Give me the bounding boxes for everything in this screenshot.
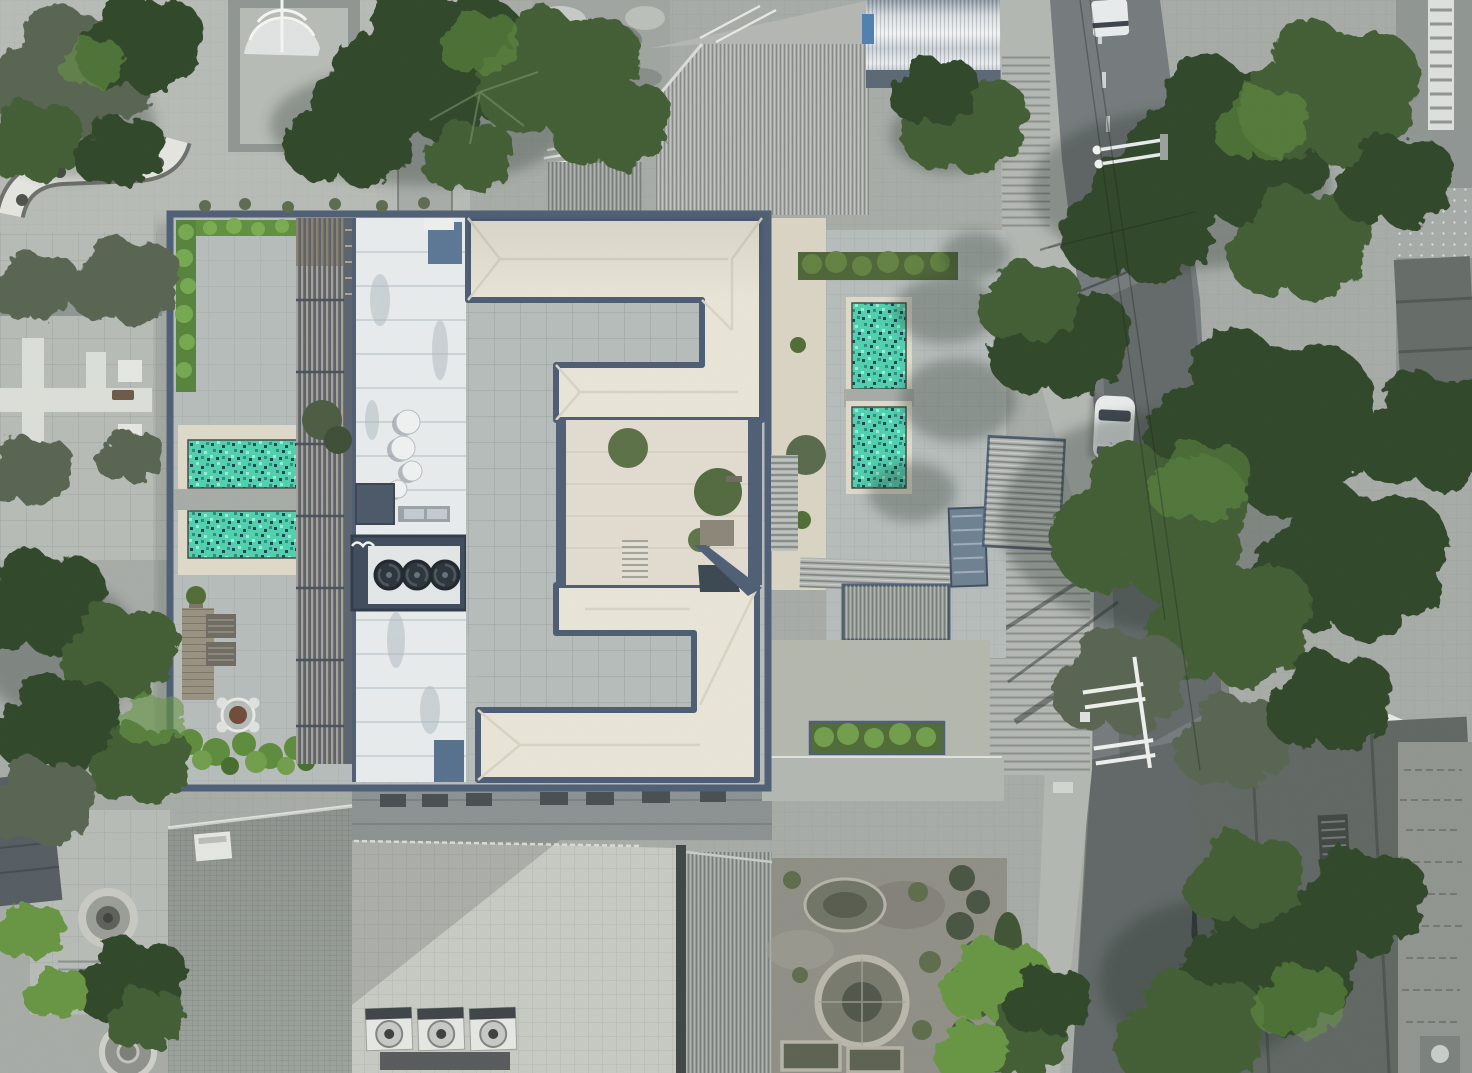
grain-overlay xyxy=(0,0,1472,1073)
aerial-photo-stage xyxy=(0,0,1472,1073)
aerial-photo xyxy=(0,0,1472,1073)
